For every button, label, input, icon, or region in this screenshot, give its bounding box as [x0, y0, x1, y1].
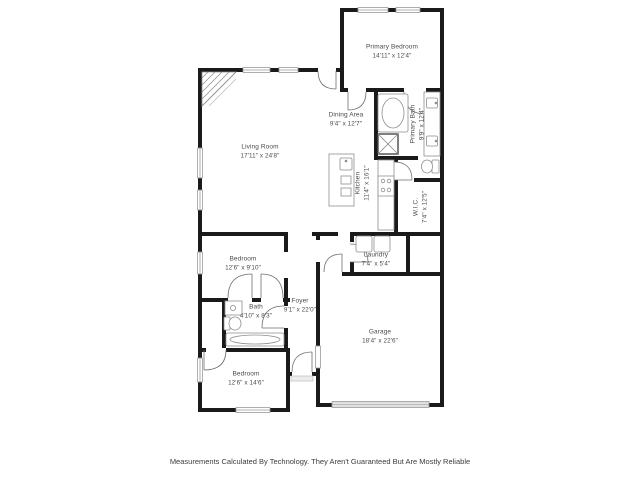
- wall-segment: [226, 348, 290, 352]
- room-dims: 9'1" x 22'0": [284, 306, 316, 315]
- window: [316, 346, 321, 368]
- room-name: W.I.C.: [412, 191, 421, 223]
- wall-segment: [340, 8, 344, 92]
- walls: [198, 8, 444, 412]
- room-dims: 12'6" x 9'10": [225, 264, 261, 273]
- floorplan-drawing: [0, 0, 640, 480]
- room-label-bedroom-1: Bedroom 12'6" x 9'10": [225, 255, 261, 272]
- room-name: Kitchen: [354, 165, 363, 200]
- room-dims: 18'4" x 22'6": [362, 337, 398, 346]
- room-dims: 12'6" x 14'6": [228, 379, 264, 388]
- room-label-primary-bath: Primary Bath 9'9" x 12'4": [409, 105, 426, 144]
- floorplan-canvas: Primary Bedroom 14'11" x 12'4" Dining Ar…: [0, 0, 640, 480]
- wall-segment: [440, 8, 444, 407]
- bathtub-hall-bath: [226, 333, 284, 346]
- room-name: Laundry: [362, 251, 391, 260]
- wall-segment: [350, 232, 354, 242]
- room-name: Bedroom: [228, 370, 264, 379]
- fireplace: [202, 72, 236, 106]
- toilet-hall-bath: [224, 317, 241, 330]
- wall-segment: [198, 348, 206, 352]
- room-label-dining-area: Dining Area 9'4" x 12'7": [329, 111, 364, 128]
- door-dining-patio: [318, 71, 336, 89]
- door-wic: [394, 162, 412, 180]
- fixtures: [202, 72, 440, 346]
- room-label-laundry: Laundry 7'4" x 5'4": [362, 251, 391, 268]
- wall-segment: [312, 372, 320, 376]
- wall-segment: [340, 8, 444, 12]
- door-primary-bedroom: [348, 92, 366, 110]
- wall-segment: [342, 272, 440, 276]
- wall-segment: [284, 328, 288, 350]
- room-label-bath: Bath 4'10" x 8'3": [240, 303, 272, 320]
- wall-segment: [340, 88, 348, 92]
- room-dims: 4'10" x 8'3": [240, 312, 272, 321]
- wall-segment: [286, 348, 290, 412]
- porch-stoop: [291, 376, 313, 381]
- room-dims: 9'9" x 12'4": [418, 105, 427, 144]
- door-garage-service: [324, 254, 342, 272]
- room-dims: 17'11" x 24'8": [241, 152, 280, 161]
- room-name: Garage: [362, 328, 398, 337]
- room-label-foyer: Foyer 9'1" x 22'0": [284, 297, 316, 314]
- room-name: Primary Bath: [409, 105, 418, 144]
- kitchen-counter: [378, 160, 394, 230]
- wall-segment: [286, 372, 292, 376]
- shower: [378, 134, 398, 154]
- room-name: Bath: [240, 303, 272, 312]
- toilet-primary: [422, 160, 440, 173]
- room-label-kitchen: Kitchen 11'4" x 16'1": [354, 165, 371, 200]
- washer-dryer: [356, 236, 390, 252]
- room-dims: 9'4" x 12'7": [329, 120, 364, 129]
- wall-segment: [366, 88, 404, 92]
- room-name: Bedroom: [225, 255, 261, 264]
- room-label-primary-bedroom: Primary Bedroom 14'11" x 12'4": [366, 43, 418, 60]
- wall-segment: [336, 68, 344, 72]
- room-label-bedroom-2: Bedroom 12'6" x 14'6": [228, 370, 264, 387]
- wall-segment: [312, 232, 338, 236]
- door-bedroom1: [261, 274, 283, 298]
- exterior-features: [291, 376, 429, 408]
- room-dims: 11'4" x 16'1": [363, 165, 372, 200]
- room-label-garage: Garage 18'4" x 22'6": [362, 328, 398, 345]
- room-dims: 14'11" x 12'4": [366, 52, 418, 61]
- measurement-disclaimer: Measurements Calculated By Technology. T…: [0, 457, 640, 466]
- door-bedroom1-closet: [228, 274, 252, 298]
- wall-segment: [406, 232, 410, 272]
- room-name: Primary Bedroom: [366, 43, 418, 52]
- wall-segment: [316, 262, 320, 403]
- kitchen-island: [329, 154, 354, 206]
- wall-segment: [426, 88, 444, 92]
- door-bedroom2: [204, 350, 226, 370]
- room-name: Dining Area: [329, 111, 364, 120]
- wall-segment: [414, 178, 440, 182]
- room-dims: 7'4" x 12'5": [421, 191, 430, 223]
- room-name: Living Room: [241, 143, 280, 152]
- bathtub-primary: [378, 94, 408, 132]
- room-dims: 7'4" x 5'4": [362, 260, 391, 269]
- wall-segment: [252, 298, 261, 302]
- wall-segment: [316, 232, 320, 240]
- wall-segment: [394, 156, 398, 162]
- room-label-living-room: Living Room 17'11" x 24'8": [241, 143, 280, 160]
- door-front-entry: [292, 352, 312, 372]
- room-name: Foyer: [284, 297, 316, 306]
- room-label-wic: W.I.C. 7'4" x 12'5": [412, 191, 429, 223]
- wall-segment: [394, 180, 398, 236]
- wall-segment: [198, 232, 288, 236]
- wall-segment: [350, 262, 354, 272]
